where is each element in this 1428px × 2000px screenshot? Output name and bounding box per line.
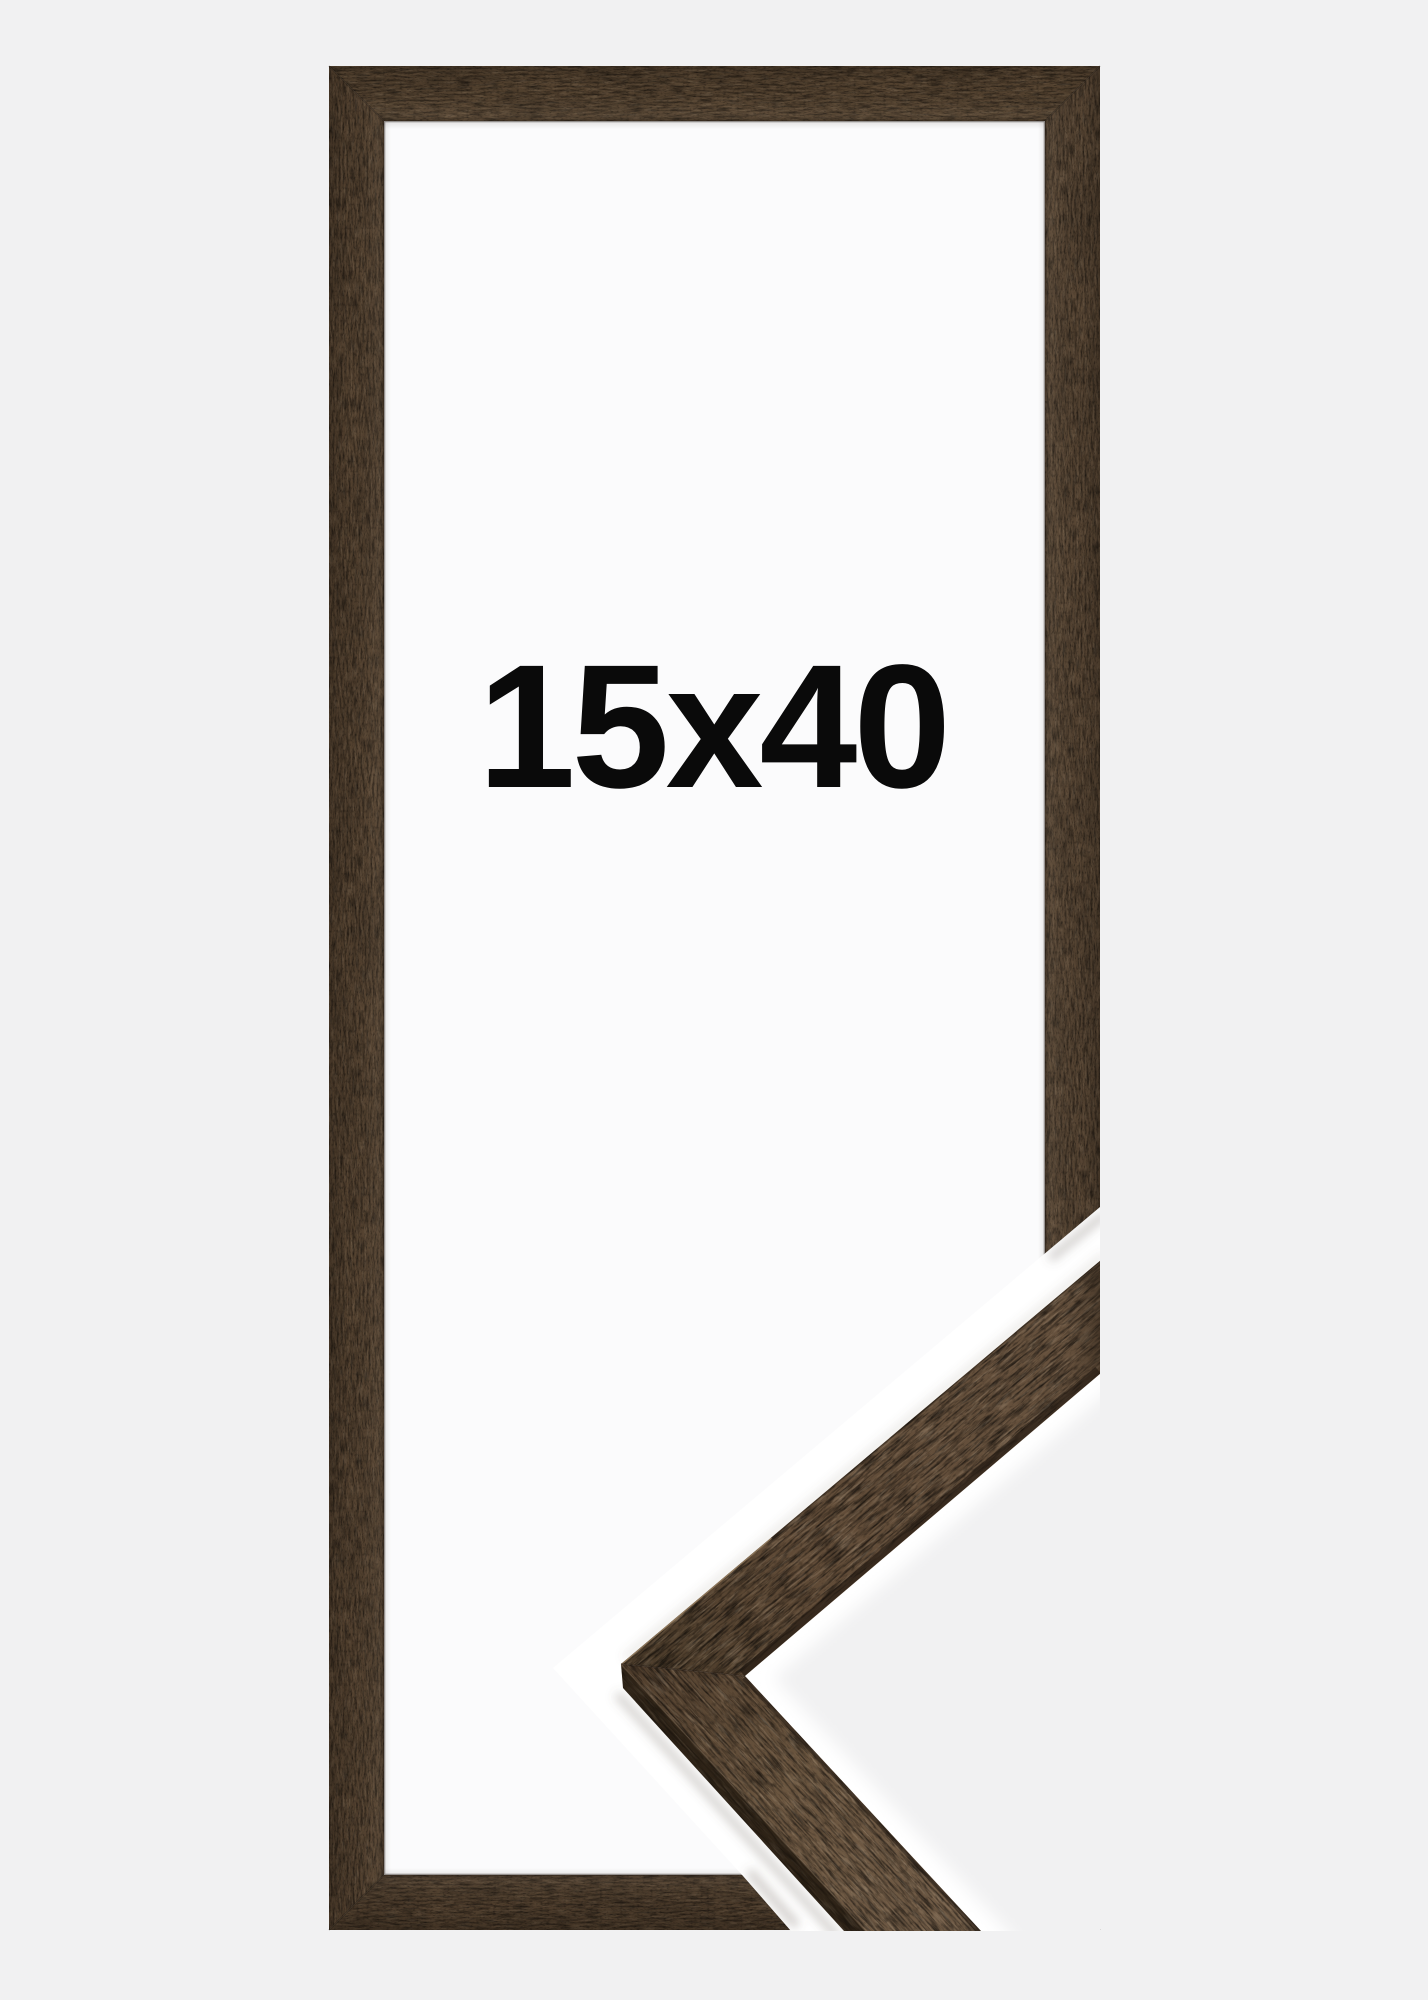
svg-text:15x40: 15x40 <box>478 629 947 825</box>
